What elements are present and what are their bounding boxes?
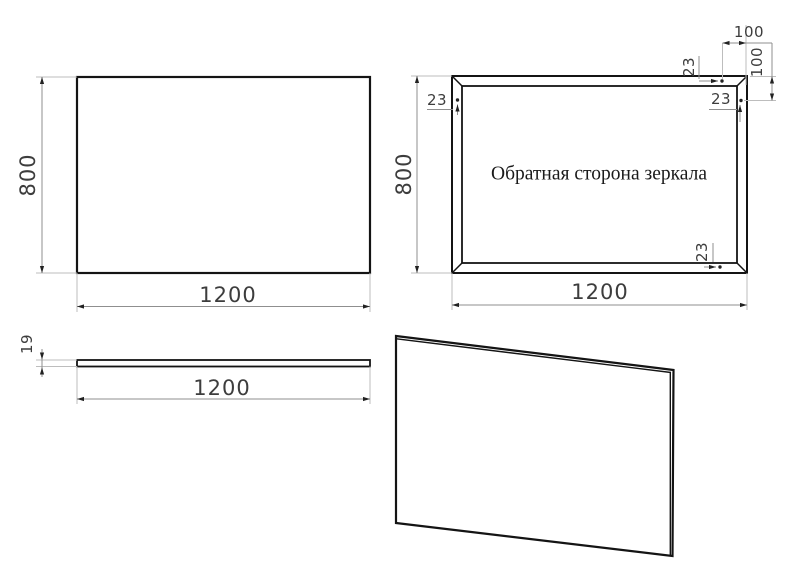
hole-offset-label-bottom: 23 [693,242,711,262]
back-width-dim-label: 1200 [571,280,628,304]
front-width-dim-label: 1200 [199,283,256,307]
hole-offset-label-top: 23 [680,57,698,77]
hole-corner-offset-label-right: 100 [748,47,766,77]
mirror-technical-drawing: 800 1200 Обратная сторона зеркала 800 [0,0,800,587]
hole-offset-label-left: 23 [427,91,447,109]
thickness-dim-label: 19 [18,334,36,354]
back-view: Обратная сторона зеркала 800 1200 23 2 [392,23,776,310]
front-height-dim-label: 800 [16,153,40,196]
hole-offset-label-right: 23 [711,90,731,108]
side-view: 19 1200 [18,334,370,404]
mounting-point-bottom [718,265,721,268]
hole-corner-offset-label-top: 100 [734,23,764,41]
front-view-outline [77,77,370,273]
front-view: 800 1200 [16,77,370,312]
mirror-technical-drawing-page: 800 1200 Обратная сторона зеркала 800 [0,0,800,587]
perspective-outline [396,336,674,556]
side-view-profile [77,360,370,367]
back-height-dim-label: 800 [392,152,416,195]
mounting-point-top [720,79,723,82]
mounting-point-left [456,98,459,101]
mounting-point-right [739,99,742,102]
mirror-back-side-label: Обратная сторона зеркала [491,164,707,185]
perspective-view [396,336,674,556]
side-length-dim-label: 1200 [193,376,250,400]
